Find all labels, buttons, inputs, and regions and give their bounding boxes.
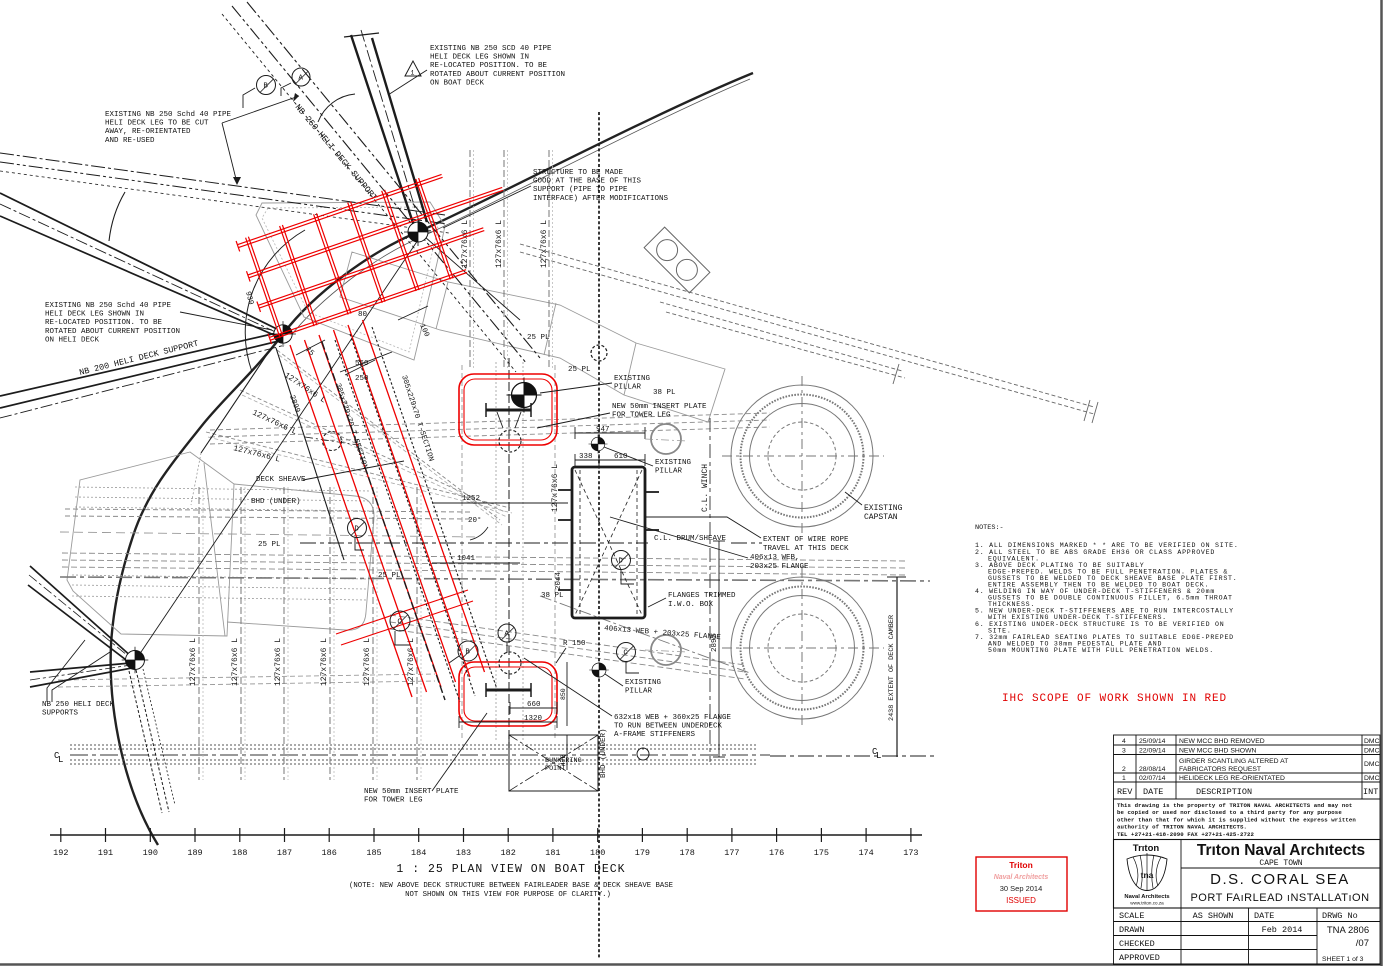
svg-text:I.W.O. BOX: I.W.O. BOX [668,601,714,609]
svg-text:NEW MCC BHD REMOVED: NEW MCC BHD REMOVED [1179,738,1265,745]
svg-text:FOR TOWER LEG: FOR TOWER LEG [612,412,671,420]
svg-text:2893: 2893 [711,633,719,652]
svg-text:HELI DECK LEG TO BE CUT: HELI DECK LEG TO BE CUT [105,120,209,128]
svg-text:EXISTING: EXISTING [625,679,662,687]
svg-text:EXTENT OF WIRE ROPE: EXTENT OF WIRE ROPE [763,536,849,544]
svg-text:DMC: DMC [1364,761,1380,768]
svg-text:127x76x6 L: 127x76x6 L [495,220,504,268]
svg-text:1320: 1320 [524,715,543,723]
svg-text:174: 174 [858,848,873,858]
svg-text:Trıton: Trıton [1133,843,1160,854]
svg-text:187: 187 [277,848,292,858]
svg-text:250: 250 [355,375,369,383]
svg-text:DRAWN: DRAWN [1119,925,1145,935]
svg-text:189: 189 [187,848,202,858]
svg-text:TNA 2806: TNA 2806 [1327,925,1369,936]
svg-text:ON BOAT DECK: ON BOAT DECK [430,79,485,87]
svg-text:SUPPORT (PIPE TO PIPE: SUPPORT (PIPE TO PIPE [533,186,628,194]
svg-text:AWAY, RE-ORIENTATED: AWAY, RE-ORIENTATED [105,128,191,136]
svg-text:38 PL: 38 PL [541,592,564,600]
svg-text:EXISTING NB 250 Schd 40 PIPE: EXISTING NB 250 Schd 40 PIPE [45,302,172,310]
svg-text:STRUCTURE TO BE MADE: STRUCTURE TO BE MADE [533,169,624,177]
svg-text:EXISTING: EXISTING [655,459,692,467]
svg-text:IHC SCOPE OF WORK SHOWN IN RED: IHC SCOPE OF WORK SHOWN IN RED [1002,693,1227,705]
svg-text:A-FRAME STIFFENERS: A-FRAME STIFFENERS [614,731,696,739]
svg-text:INT: INT [1363,787,1378,797]
svg-text:PILLAR: PILLAR [614,384,642,392]
svg-text:TEL +27+21-418-2090 FAX +27+: TEL +27+21-418-2090 FAX +27+21-425-2722 [1117,831,1254,838]
svg-text:SHEET 1 of 3: SHEET 1 of 3 [1322,956,1364,963]
svg-text:127x76x6 L: 127x76x6 L [231,638,240,686]
svg-text:185: 185 [366,848,381,858]
svg-text:CAPSTAN: CAPSTAN [864,513,898,522]
svg-text:GOOD AT THE BASE OF THIS: GOOD AT THE BASE OF THIS [533,178,642,186]
svg-text:02/07/14: 02/07/14 [1139,775,1166,782]
svg-text:AS SHOWN: AS SHOWN [1193,911,1234,921]
svg-text:authority of TRITON NAVAL ARCH: authority of TRITON NAVAL ARCHITECTS. [1117,824,1247,831]
svg-text:610: 610 [614,453,628,461]
svg-text:179: 179 [635,848,650,858]
svg-text:REV: REV [1117,787,1133,797]
svg-text:FOR TOWER LEG: FOR TOWER LEG [364,797,423,805]
svg-text:NEW 50mm INSERT PLATE: NEW 50mm INSERT PLATE [364,788,459,796]
svg-text:173: 173 [903,848,918,858]
svg-text:30 Sep 2014: 30 Sep 2014 [1000,884,1043,893]
svg-text:176: 176 [769,848,784,858]
svg-text:127x76x6 L: 127x76x6 L [540,220,549,268]
svg-text:This drawing is the property o: This drawing is the property of TRITON N… [1117,802,1352,809]
svg-text:INTERFACE) AFTER MODIFICATIONS: INTERFACE) AFTER MODIFICATIONS [533,195,669,203]
svg-text:BHD (UNDER): BHD (UNDER) [600,728,608,778]
svg-text:ROTATED ABOUT CURRENT POSITION: ROTATED ABOUT CURRENT POSITION [45,328,180,336]
svg-text:HELIDECK LEG RE-ORIENTATED: HELIDECK LEG RE-ORIENTATED [1179,775,1285,782]
svg-text:AND RE-USED: AND RE-USED [105,137,155,145]
svg-text:Naval Architects: Naval Architects [994,874,1049,881]
svg-text:NB 250 HELI DECK: NB 250 HELI DECK [42,701,115,709]
svg-text:127x76x6 L: 127x76x6 L [274,638,283,686]
svg-text:28/08/14: 28/08/14 [1139,766,1166,773]
svg-text:C.L. DRUM/SHEAVE: C.L. DRUM/SHEAVE [654,535,727,543]
svg-text:25 PL: 25 PL [568,366,591,374]
svg-text:406x13 WEB,: 406x13 WEB, [750,554,800,562]
svg-text:RE-LOCATED POSITION. TO BE: RE-LOCATED POSITION. TO BE [430,62,548,70]
svg-text:tna: tna [1141,870,1154,880]
svg-text:175: 175 [814,848,829,858]
svg-text:www.triton.co.za: www.triton.co.za [1130,901,1164,906]
svg-text:EXISTING NB 250 Schd 40 PIPE: EXISTING NB 250 Schd 40 PIPE [105,111,232,119]
svg-text:DATE: DATE [1143,787,1163,797]
svg-text:Feb 2014: Feb 2014 [1262,925,1303,935]
svg-text:ON HELI DECK: ON HELI DECK [45,336,100,344]
svg-text:TO RUN BETWEEN UNDERDECK: TO RUN BETWEEN UNDERDECK [614,723,723,731]
svg-text:GIRDER SCANTLING ALTERED AT: GIRDER SCANTLING ALTERED AT [1179,758,1288,765]
svg-text:192: 192 [53,848,68,858]
svg-text:DMC: DMC [1364,748,1380,755]
svg-text:DESCRIPTION: DESCRIPTION [1196,787,1252,797]
svg-text:D: D [354,526,359,534]
svg-text:25 PL: 25 PL [258,541,281,549]
svg-text:C: C [397,619,402,627]
svg-text:632x18 WEB + 360x25 FLANGE: 632x18 WEB + 360x25 FLANGE [614,714,732,722]
svg-text:L: L [58,755,63,765]
svg-text:DRWG No: DRWG No [1322,911,1358,921]
svg-text:EXISTING: EXISTING [864,504,903,513]
svg-text:190: 190 [143,848,158,858]
svg-text:2044: 2044 [555,571,563,590]
svg-text:80: 80 [358,311,368,319]
svg-text:NOT SHOWN ON THIS VIEW FOR PUR: NOT SHOWN ON THIS VIEW FOR PURPOSE OF CL… [405,891,611,899]
svg-text:PORT FAıRLEAD ıNSTALLATıON: PORT FAıRLEAD ıNSTALLATıON [1190,892,1369,904]
svg-text:CHECKED: CHECKED [1119,939,1155,949]
svg-text:DATE: DATE [1254,911,1274,921]
svg-text:EXISTING: EXISTING [614,375,651,383]
svg-text:660: 660 [527,701,541,709]
svg-text:(NOTE: NEW ABOVE DECK STRUCTUR: (NOTE: NEW ABOVE DECK STRUCTURE BETWEEN … [349,882,673,890]
svg-text:EXISTING NB 250 SCD 40 PIPE: EXISTING NB 250 SCD 40 PIPE [430,45,552,53]
svg-text:203x25 FLANGE: 203x25 FLANGE [750,563,809,571]
svg-text:2438 EXTENT OF DECK CAMBER: 2438 EXTENT OF DECK CAMBER [888,615,896,721]
svg-text:DECK SHEAVE: DECK SHEAVE [256,476,306,484]
svg-text:1: 1 [1122,775,1126,782]
svg-text:/07: /07 [1356,938,1369,949]
svg-text:RE-LOCATED POSITION. TO BE: RE-LOCATED POSITION. TO BE [45,319,163,327]
svg-text:127x76x6 L: 127x76x6 L [461,220,470,268]
svg-text:178: 178 [680,848,695,858]
svg-text:180: 180 [590,848,605,858]
svg-text:1041: 1041 [457,555,476,563]
svg-text:1 : 25 PLAN VIEW ON BOAT DECK: 1 : 25 PLAN VIEW ON BOAT DECK [396,863,625,876]
svg-text:20°: 20° [468,516,482,525]
svg-text:NOTES:-: NOTES:- [975,524,1004,532]
svg-text:be copied or used nor disclose: be copied or used nor disclosed to a thi… [1117,809,1342,816]
svg-text:C.L. WINCH: C.L. WINCH [701,464,710,512]
svg-text:BHD (UNDER): BHD (UNDER) [251,498,301,506]
svg-text:191: 191 [98,848,113,858]
svg-text:25 PL: 25 PL [378,572,401,580]
svg-text:2: 2 [1122,766,1126,773]
svg-text:3: 3 [1122,748,1126,755]
svg-text:DMC: DMC [1364,738,1380,745]
svg-text:188: 188 [232,848,247,858]
svg-text:B: B [465,649,470,657]
svg-text:APPROVED: APPROVED [1119,953,1160,963]
svg-text:338: 338 [579,453,593,461]
svg-text:560: 560 [355,360,369,368]
svg-text:177: 177 [724,848,739,858]
svg-text:182: 182 [501,848,516,858]
svg-text:Naval Architects: Naval Architects [1124,894,1169,900]
svg-text:186: 186 [322,848,337,858]
svg-text:PILLAR: PILLAR [655,468,683,476]
svg-text:HELI DECK LEG SHOWN IN: HELI DECK LEG SHOWN IN [45,311,144,319]
svg-text:NEW 50mm INSERT PLATE: NEW 50mm INSERT PLATE [612,403,707,411]
svg-text:127x76x6 L: 127x76x6 L [363,638,372,686]
svg-text:B: B [263,83,268,91]
svg-text:50mm MOUNTING PLATE WITH FULL: 50mm MOUNTING PLATE WITH FULL PENETRATIO… [988,647,1214,654]
svg-text:Triton: Triton [1009,860,1033,870]
svg-text:ISSUED: ISSUED [1006,896,1036,905]
svg-text:22/09/14: 22/09/14 [1139,748,1166,755]
svg-text:PILLAR: PILLAR [625,688,653,696]
svg-text:127x76x6 L: 127x76x6 L [551,464,560,512]
svg-text:L: L [876,751,881,761]
svg-text:1252: 1252 [462,495,480,503]
svg-text:CAPE TOWN: CAPE TOWN [1259,859,1302,868]
svg-text:183: 183 [456,848,471,858]
svg-text:SUPPORTS: SUPPORTS [42,710,79,718]
svg-text:FABRICATORS REQUEST: FABRICATORS REQUEST [1179,766,1261,773]
svg-text:DMC: DMC [1364,775,1380,782]
svg-text:947: 947 [596,426,610,434]
svg-text:A: A [298,75,303,83]
svg-text:6. EXISTING UNDER-DECK STRUCTU: 6. EXISTING UNDER-DECK STRUCTURE IS TO B… [975,621,1224,628]
svg-text:478: 478 [560,754,567,766]
svg-text:R 150: R 150 [563,640,586,648]
svg-text:FLANGES TRIMMED: FLANGES TRIMMED [668,592,736,600]
svg-text:A: A [504,631,509,639]
svg-text:25 PL: 25 PL [527,334,550,342]
svg-text:127x76x6 L: 127x76x6 L [189,638,198,686]
svg-text:181: 181 [545,848,560,858]
svg-text:D.S. CORAL SEA: D.S. CORAL SEA [1210,871,1350,888]
svg-text:Trıton Naval Archıtects: Trıton Naval Archıtects [1197,842,1365,859]
svg-text:38 PL: 38 PL [653,389,676,397]
svg-text:C: C [623,650,628,658]
svg-text:other than that for which it i: other than that for which it is supplied… [1117,816,1356,823]
svg-text:D: D [618,558,623,566]
svg-text:1: 1 [411,70,415,77]
svg-text:184: 184 [411,848,426,858]
svg-text:TRAVEL AT THIS DECK: TRAVEL AT THIS DECK [763,545,849,553]
svg-text:NEW MCC BHD SHOWN: NEW MCC BHD SHOWN [1179,748,1256,755]
svg-text:4: 4 [1122,738,1126,745]
svg-text:ROTATED ABOUT CURRENT POSITION: ROTATED ABOUT CURRENT POSITION [430,71,565,79]
svg-text:HELI DECK LEG SHOWN IN: HELI DECK LEG SHOWN IN [430,54,529,62]
svg-text:127x76x6 L: 127x76x6 L [320,638,329,686]
svg-text:SCALE: SCALE [1119,911,1145,921]
svg-text:850: 850 [560,688,567,700]
svg-text:25/09/14: 25/09/14 [1139,738,1166,745]
